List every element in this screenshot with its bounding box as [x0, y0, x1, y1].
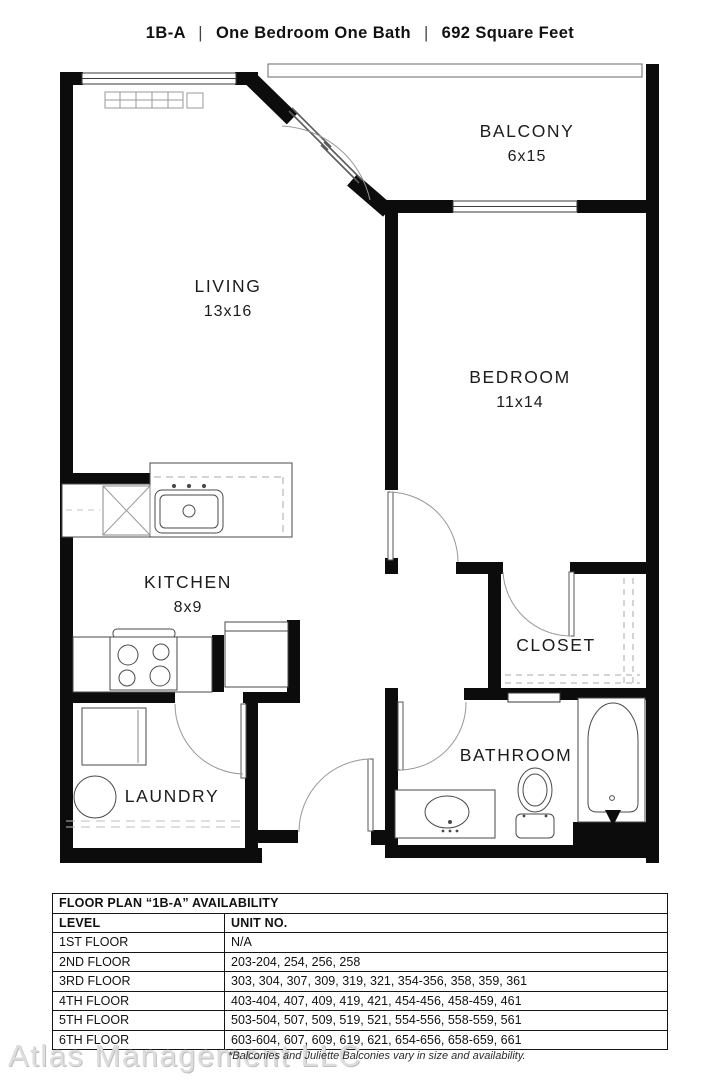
bathtub: [578, 698, 645, 826]
wall-kitchen-bottom-a: [60, 692, 175, 703]
refrigerator: [225, 622, 288, 687]
balcony-dims: 6x15: [508, 148, 547, 165]
living-label: LIVING: [195, 276, 262, 296]
bathroom-fixtures: [395, 693, 645, 838]
level-cell: 3RD FLOOR: [53, 972, 225, 992]
entry-door-arc: [299, 759, 370, 832]
toilet-bowl-inner: [523, 774, 547, 806]
wall-top-left: [60, 72, 83, 85]
wall-kitchen-stub: [60, 473, 152, 484]
table-header-row: LEVEL UNIT NO.: [53, 913, 668, 933]
laundry-door: [175, 704, 246, 778]
bathroom-label: BATHROOM: [460, 745, 573, 765]
kitchen-label: KITCHEN: [144, 572, 232, 592]
laundry-label: LAUNDRY: [125, 786, 220, 806]
towel-niche: [508, 693, 560, 702]
slider-panel-1b: [292, 108, 331, 147]
table-row: 3RD FLOOR 303, 304, 307, 309, 319, 321, …: [53, 972, 668, 992]
vanity-dot-2: [449, 830, 452, 833]
laundry-door-leaf: [241, 704, 246, 778]
kitchen-dims: 8x9: [174, 599, 203, 616]
toilet: [516, 768, 554, 838]
units-cell: 203-204, 254, 256, 258: [225, 952, 668, 972]
table-row: 4TH FLOOR 403-404, 407, 409, 419, 421, 4…: [53, 991, 668, 1011]
level-cell: 5TH FLOOR: [53, 1011, 225, 1031]
closet-label: CLOSET: [516, 635, 596, 655]
wall-hall-south-east: [371, 830, 398, 845]
units-cell: 503-504, 507, 509, 519, 521, 554-556, 55…: [225, 1011, 668, 1031]
bedroom-door-arc: [390, 492, 458, 562]
table-row: 1ST FLOOR N/A: [53, 933, 668, 953]
floor-plan-page: 1B-A | One Bedroom One Bath | 692 Square…: [0, 0, 720, 1080]
sink-inner: [160, 495, 218, 528]
level-cell: 4TH FLOOR: [53, 991, 225, 1011]
table-title-row: FLOOR PLAN “1B-A” AVAILABILITY: [53, 894, 668, 914]
units-cell: 403-404, 407, 409, 419, 421, 454-456, 45…: [225, 991, 668, 1011]
wall-laundry-east: [245, 700, 258, 850]
wall-right: [646, 64, 659, 863]
vanity-drain: [448, 820, 452, 824]
refrigerator-body: [225, 622, 288, 687]
bedroom-dims: 11x14: [496, 394, 543, 411]
toilet-tank: [516, 814, 554, 838]
availability-table: FLOOR PLAN “1B-A” AVAILABILITY LEVEL UNI…: [52, 893, 668, 1050]
entry-door-leaf: [368, 759, 373, 831]
slider-panel-2b: [324, 142, 362, 180]
wall-hall-south-west: [248, 830, 298, 843]
wall-diagonal-lower: [352, 180, 388, 211]
column-header-unit-no: UNIT NO.: [225, 913, 668, 933]
bathroom-door-leaf: [398, 702, 403, 770]
table-title: FLOOR PLAN “1B-A” AVAILABILITY: [53, 894, 668, 914]
bedroom-door-leaf: [388, 492, 393, 560]
table-row: 5TH FLOOR 503-504, 507, 509, 519, 521, 5…: [53, 1011, 668, 1031]
wall-bedroom-top-b: [577, 200, 659, 213]
thermostat-box: [187, 93, 203, 108]
entry-door: [299, 759, 373, 832]
bathroom-door-arc: [400, 702, 466, 770]
wall-bedroom-south-b: [570, 562, 659, 574]
vanity-dot-3: [456, 830, 459, 833]
closet-door-arc: [503, 572, 571, 636]
wall-tub-block: [573, 822, 659, 850]
stove: [110, 629, 177, 690]
wall-counter-post: [212, 635, 224, 692]
faucet-dot-2: [187, 484, 190, 487]
toilet-bolt-1: [523, 815, 526, 818]
units-cell: 303, 304, 307, 309, 319, 321, 354-356, 3…: [225, 972, 668, 992]
balcony-label: BALCONY: [480, 121, 575, 141]
level-cell: 2ND FLOOR: [53, 952, 225, 972]
bedroom-door: [388, 492, 458, 562]
wall-fridge-post: [287, 620, 300, 703]
hvac-unit: [105, 92, 203, 108]
living-dims: 13x16: [204, 303, 253, 320]
bathroom-door: [398, 702, 466, 770]
closet-door-leaf: [569, 572, 574, 636]
closet-door: [503, 572, 574, 636]
washer: [82, 708, 146, 765]
wall-laundry-south: [60, 848, 262, 863]
vanity-basin: [425, 796, 469, 828]
wall-hall-closet: [488, 572, 501, 696]
balcony-railing: [268, 64, 642, 77]
vanity-sink: [395, 790, 495, 838]
laundry-door-arc: [175, 704, 243, 774]
dryer: [74, 776, 116, 818]
wall-diagonal-upper: [250, 78, 292, 119]
wall-living-bedroom: [385, 205, 398, 490]
faucet-dot-3: [202, 484, 205, 487]
dishwasher: [103, 486, 150, 535]
units-cell: N/A: [225, 933, 668, 953]
level-cell: 1ST FLOOR: [53, 933, 225, 953]
faucet-dot-1: [172, 484, 175, 487]
kitchen-sink: [155, 484, 223, 533]
wall-left: [60, 72, 73, 863]
column-header-level: LEVEL: [53, 913, 225, 933]
table-row: 2ND FLOOR 203-204, 254, 256, 258: [53, 952, 668, 972]
toilet-bolt-2: [545, 815, 548, 818]
balcony-disclaimer-note: *Balconies and Juliette Balconies vary i…: [228, 1050, 526, 1062]
bedroom-label: BEDROOM: [469, 367, 571, 387]
vanity-dot-1: [442, 830, 445, 833]
